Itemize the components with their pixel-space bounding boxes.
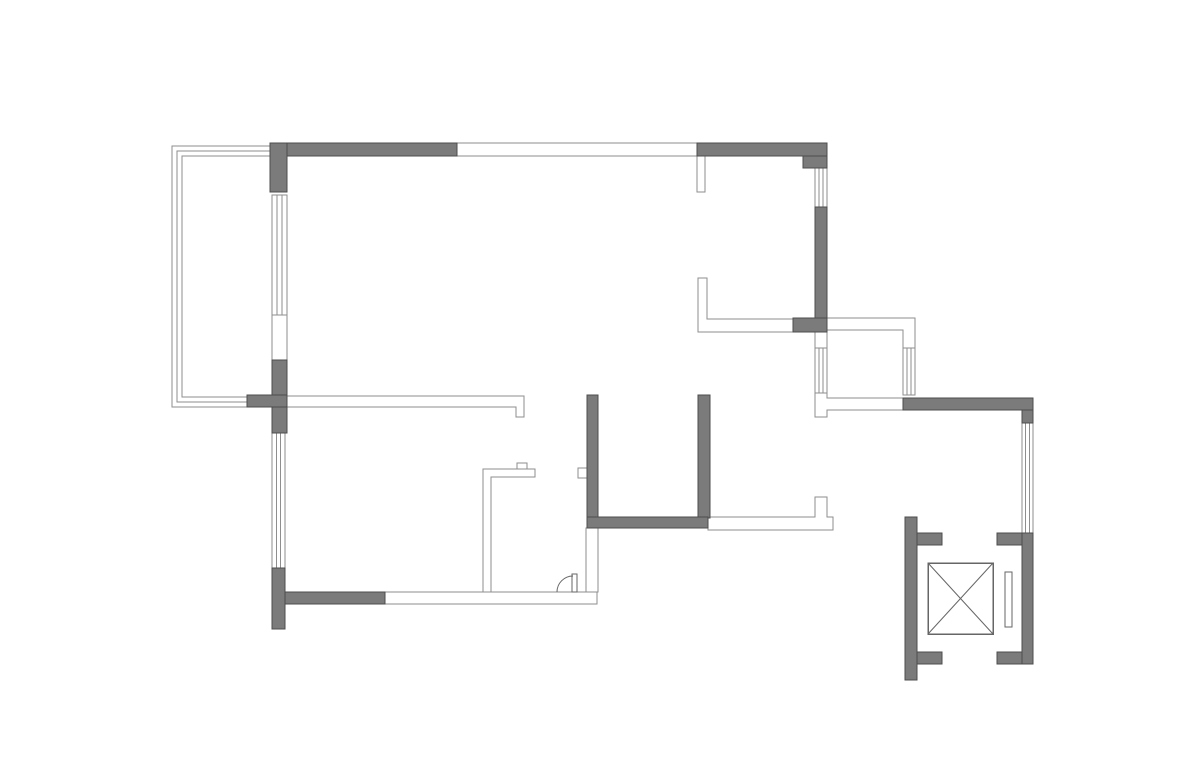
kitchen-counter-bump bbox=[517, 463, 527, 469]
balcony-railing-line-3 bbox=[182, 156, 270, 397]
floor-plan-drawing bbox=[0, 0, 1200, 776]
top-window-band bbox=[457, 143, 697, 156]
interior-wall-vertical-left bbox=[587, 395, 598, 528]
elevator-door bbox=[1005, 572, 1012, 627]
window-bay-left bbox=[815, 348, 827, 393]
exterior-wall-top-left bbox=[270, 143, 457, 156]
balcony-tee-bar bbox=[247, 395, 287, 407]
entry-door-leaf bbox=[572, 574, 577, 592]
bottom-wall-dark bbox=[285, 592, 385, 604]
left-wall-top-block bbox=[270, 143, 287, 192]
elevator-left-arm-top bbox=[917, 533, 942, 545]
window-left-upper bbox=[272, 195, 287, 315]
interior-long-wall bbox=[287, 396, 524, 417]
bay-bottom-band bbox=[815, 393, 903, 417]
exterior-wall-top-right bbox=[697, 143, 827, 156]
hall-wall-top bbox=[903, 398, 1033, 410]
window-hall-right bbox=[1022, 423, 1033, 533]
window-right-top bbox=[815, 168, 827, 207]
bay-top-band bbox=[825, 318, 915, 348]
closet-wall-C bbox=[698, 278, 793, 332]
elevator-right-column bbox=[1022, 533, 1033, 664]
left-wall-lower-block bbox=[272, 568, 285, 629]
bottom-wall-thin bbox=[385, 592, 597, 604]
interior-wall-horizontal bbox=[587, 517, 708, 528]
bedroom-bottom-band bbox=[708, 497, 833, 530]
balcony-railing-line-1 bbox=[172, 146, 270, 407]
elevator-left-arm-bottom bbox=[917, 652, 942, 664]
window-left-lower bbox=[272, 433, 285, 568]
elevator-right-arm-bottom bbox=[997, 652, 1022, 664]
balcony-railing-line-2 bbox=[177, 151, 270, 402]
hall-wall-right-upper bbox=[1022, 410, 1033, 423]
corner-block-right bbox=[793, 318, 827, 332]
wall-stub-kitchen-east bbox=[578, 468, 587, 478]
elevator-left-column bbox=[905, 517, 917, 680]
corner-step-top-right bbox=[803, 156, 827, 168]
entry-door-swing-arc bbox=[557, 576, 573, 592]
window-bay-right bbox=[903, 348, 915, 395]
interior-wall-vertical-right bbox=[698, 395, 710, 518]
exterior-wall-right-upper bbox=[815, 207, 827, 318]
bay-left-upper-segment bbox=[815, 332, 827, 348]
floor-plan bbox=[0, 0, 1200, 776]
top-wall-stub bbox=[697, 156, 705, 192]
elevator-right-arm-top bbox=[997, 533, 1022, 545]
below-wall-thin-vertical bbox=[586, 528, 598, 592]
kitchen-partition-L bbox=[483, 469, 535, 592]
